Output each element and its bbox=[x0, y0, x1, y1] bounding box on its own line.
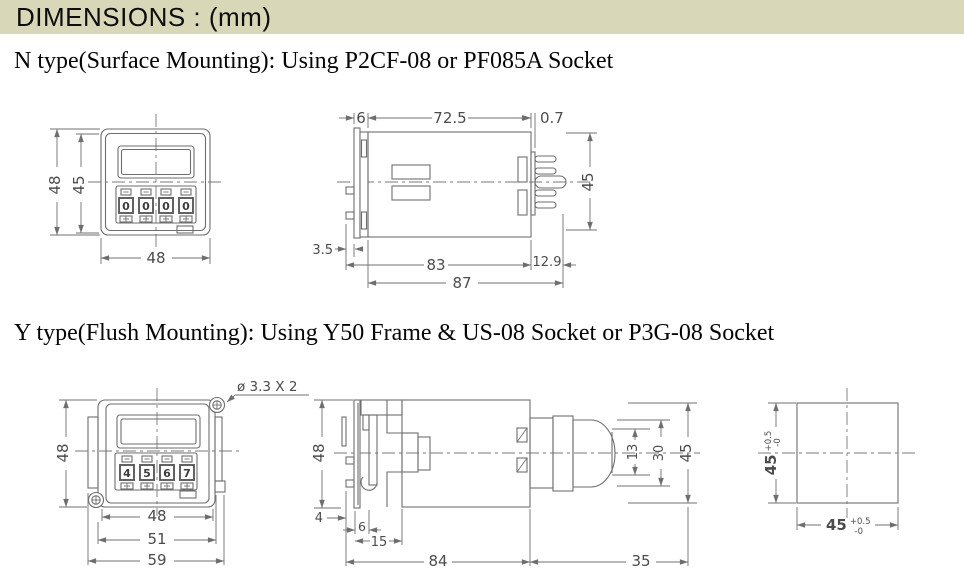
y-side-dim-socket: 35 bbox=[631, 552, 650, 570]
dimensions-drawing: 0 0 0 0 48 bbox=[0, 0, 964, 570]
y-front-dim-width: 48 bbox=[147, 507, 166, 525]
y-side-dim-flange-height: 45 bbox=[677, 443, 695, 462]
y-side-dim-tip: 13 bbox=[626, 444, 641, 461]
n-side-dim-gap: 0.7 bbox=[540, 109, 564, 127]
n-side-dim-bezel: 6 bbox=[356, 109, 366, 127]
y-socket bbox=[530, 416, 615, 491]
n-front-dim-inner-height: 45 bbox=[70, 175, 88, 194]
y-side-dim-height: 48 bbox=[310, 443, 328, 462]
n-front-view: 0 0 0 0 48 bbox=[46, 114, 224, 267]
y-front-dim-frame: 51 bbox=[147, 530, 166, 548]
y-mount-screw-bottom bbox=[89, 493, 104, 508]
n-digit-1: 0 bbox=[122, 200, 130, 213]
y-digit-4: 7 bbox=[183, 467, 191, 480]
datasheet-page: DIMENSIONS : (mm) N type(Surface Mountin… bbox=[0, 0, 964, 570]
y-side-dim-panel: 4 bbox=[315, 511, 323, 526]
n-side-view: 6 72.5 0.7 45 3.5 83 12.9 bbox=[312, 109, 597, 292]
n-side-dim-peg: 3.5 bbox=[312, 243, 333, 258]
n-side-dim-height: 45 bbox=[579, 172, 597, 191]
n-front-dim-width: 48 bbox=[146, 249, 165, 267]
n-digit-2: 0 bbox=[142, 200, 150, 213]
cutout-dim-width: 45+0.5-0 bbox=[826, 516, 871, 537]
y-front-dim-height: 48 bbox=[54, 443, 72, 462]
n-digit-4: 0 bbox=[182, 200, 190, 213]
n-side-dim-83: 83 bbox=[426, 256, 445, 274]
y-digit-1: 4 bbox=[123, 467, 131, 480]
n-digit-3: 0 bbox=[162, 200, 170, 213]
y-side-view: 48 4 6 15 84 35 1 bbox=[310, 400, 700, 570]
y-side-dim-body: 84 bbox=[428, 552, 447, 570]
y-mount-screw-top bbox=[210, 398, 225, 413]
panel-cutout-view: 45+0.5-0 45+0.5-0 bbox=[758, 388, 916, 537]
y-screw-callout: ø 3.3 X 2 bbox=[237, 379, 297, 395]
y-side-dim-bezel: 6 bbox=[358, 519, 366, 534]
y-side-dim-socket-height: 30 bbox=[652, 445, 667, 462]
y-front-dim-flange: 59 bbox=[147, 551, 166, 569]
n-side-dim-pin: 12.9 bbox=[533, 255, 562, 270]
y-digit-2: 5 bbox=[143, 467, 151, 480]
n-front-dim-height: 48 bbox=[46, 175, 64, 194]
y-front-view: 4 5 6 7 bbox=[54, 379, 309, 569]
n-side-dim-87: 87 bbox=[452, 274, 471, 292]
y-side-dim-frame-depth: 15 bbox=[371, 535, 388, 550]
n-side-dim-body: 72.5 bbox=[433, 109, 466, 127]
y-digit-3: 6 bbox=[163, 467, 171, 480]
